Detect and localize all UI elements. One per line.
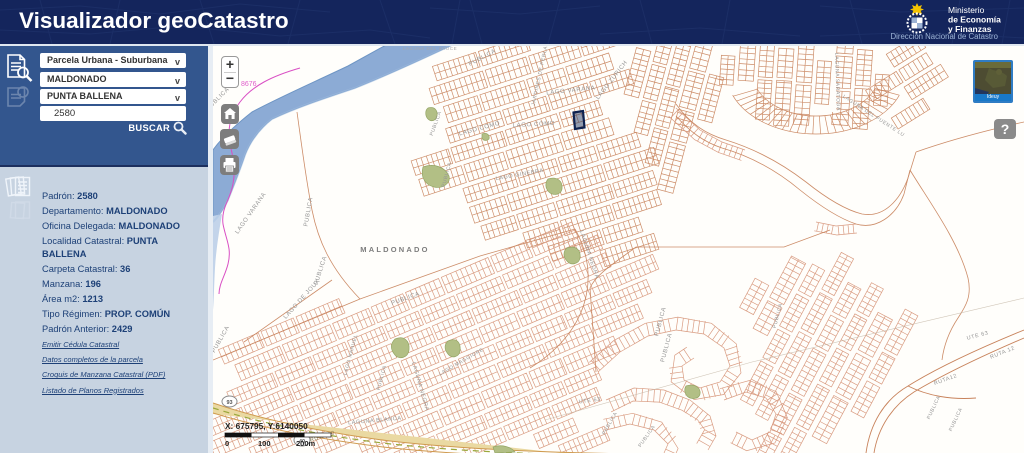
svg-text:0: 0 [225,439,229,448]
svg-text:X: 675795, Y:6140050: X: 675795, Y:6140050 [225,421,308,431]
svg-text:LAGUNA DEL SAUCE: LAGUNA DEL SAUCE [403,46,457,51]
svg-text:200m: 200m [296,439,316,448]
svg-text:de Economía: de Economía [948,15,1001,25]
svg-text:8676: 8676 [241,81,257,88]
svg-text:MALDONADO: MALDONADO [360,245,429,254]
svg-text:Ministerio: Ministerio [948,5,985,15]
svg-text:100: 100 [258,439,271,448]
svg-text:93: 93 [226,400,232,406]
